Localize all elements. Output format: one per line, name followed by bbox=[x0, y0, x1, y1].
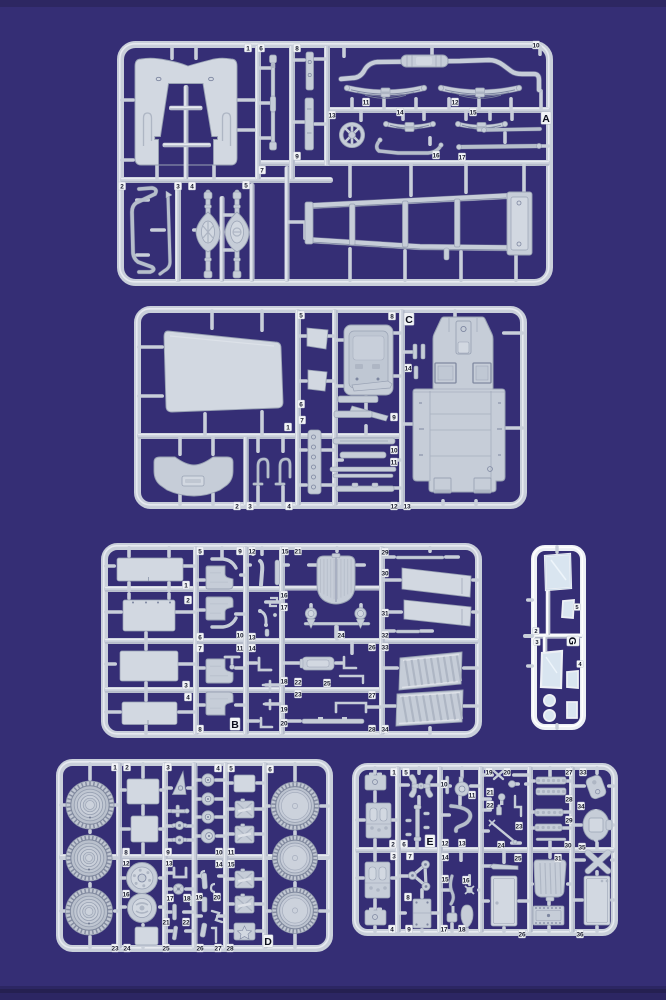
svg-text:4: 4 bbox=[186, 694, 190, 701]
svg-text:7: 7 bbox=[300, 417, 304, 424]
svg-text:26: 26 bbox=[196, 945, 204, 952]
svg-text:13: 13 bbox=[165, 860, 173, 867]
svg-text:4: 4 bbox=[190, 183, 194, 190]
svg-text:23: 23 bbox=[515, 823, 523, 830]
svg-text:34: 34 bbox=[381, 726, 389, 733]
svg-text:11: 11 bbox=[228, 849, 235, 856]
svg-text:5: 5 bbox=[299, 312, 303, 319]
svg-text:20: 20 bbox=[503, 769, 511, 776]
svg-text:D: D bbox=[264, 936, 272, 948]
svg-text:25: 25 bbox=[323, 680, 331, 687]
svg-text:21: 21 bbox=[486, 789, 494, 796]
svg-text:10: 10 bbox=[532, 42, 540, 49]
svg-text:17: 17 bbox=[458, 154, 466, 161]
svg-text:14: 14 bbox=[396, 109, 404, 116]
svg-text:1: 1 bbox=[392, 769, 396, 776]
svg-text:4: 4 bbox=[216, 765, 220, 772]
svg-text:2: 2 bbox=[186, 597, 190, 604]
svg-text:26: 26 bbox=[368, 644, 376, 651]
svg-text:10: 10 bbox=[236, 632, 244, 639]
svg-text:2: 2 bbox=[391, 841, 395, 848]
svg-text:4: 4 bbox=[390, 926, 394, 933]
svg-text:C: C bbox=[405, 314, 413, 326]
svg-text:16: 16 bbox=[122, 891, 130, 898]
svg-text:30: 30 bbox=[381, 570, 389, 577]
svg-text:29: 29 bbox=[381, 549, 389, 556]
svg-text:20: 20 bbox=[213, 894, 221, 901]
svg-text:15: 15 bbox=[469, 109, 477, 116]
svg-text:26: 26 bbox=[518, 931, 526, 938]
svg-text:10: 10 bbox=[440, 781, 448, 788]
svg-text:23: 23 bbox=[111, 945, 119, 952]
svg-text:22: 22 bbox=[486, 802, 494, 809]
svg-text:17: 17 bbox=[440, 926, 448, 933]
svg-text:12: 12 bbox=[441, 840, 449, 847]
svg-text:6: 6 bbox=[198, 634, 202, 641]
svg-text:20: 20 bbox=[280, 720, 288, 727]
svg-text:16: 16 bbox=[462, 877, 470, 884]
svg-text:14: 14 bbox=[441, 854, 449, 861]
svg-text:11: 11 bbox=[363, 99, 370, 106]
svg-text:12: 12 bbox=[390, 503, 398, 510]
svg-text:2: 2 bbox=[534, 629, 537, 635]
svg-text:1: 1 bbox=[246, 45, 250, 52]
svg-text:4: 4 bbox=[287, 503, 291, 510]
svg-text:2: 2 bbox=[125, 764, 129, 771]
svg-text:33: 33 bbox=[381, 644, 389, 651]
svg-text:24: 24 bbox=[497, 842, 505, 849]
svg-text:24: 24 bbox=[337, 632, 345, 639]
svg-text:31: 31 bbox=[381, 610, 389, 617]
svg-text:9: 9 bbox=[238, 548, 242, 555]
svg-text:A: A bbox=[542, 113, 550, 125]
svg-text:21: 21 bbox=[162, 919, 170, 926]
svg-text:8: 8 bbox=[124, 849, 128, 856]
svg-text:18: 18 bbox=[183, 895, 191, 902]
svg-text:13: 13 bbox=[248, 634, 256, 641]
svg-text:22: 22 bbox=[182, 919, 190, 926]
svg-text:8: 8 bbox=[390, 313, 394, 320]
svg-text:1: 1 bbox=[184, 582, 188, 589]
svg-text:22: 22 bbox=[294, 679, 302, 686]
svg-text:16: 16 bbox=[280, 592, 288, 599]
svg-text:18: 18 bbox=[280, 678, 288, 685]
svg-text:5: 5 bbox=[244, 182, 248, 189]
svg-text:8: 8 bbox=[295, 45, 299, 52]
svg-text:2: 2 bbox=[235, 503, 239, 510]
svg-text:15: 15 bbox=[441, 876, 449, 883]
svg-text:5: 5 bbox=[198, 548, 202, 555]
svg-text:10: 10 bbox=[215, 849, 223, 856]
svg-text:18: 18 bbox=[458, 926, 466, 933]
svg-text:5: 5 bbox=[404, 769, 408, 776]
svg-text:3: 3 bbox=[392, 853, 396, 860]
svg-text:9: 9 bbox=[295, 153, 299, 160]
svg-text:17: 17 bbox=[166, 895, 174, 902]
svg-text:2: 2 bbox=[120, 183, 124, 190]
svg-text:7: 7 bbox=[260, 167, 264, 174]
svg-text:11: 11 bbox=[469, 792, 476, 799]
svg-text:3: 3 bbox=[166, 764, 170, 771]
svg-text:31: 31 bbox=[554, 855, 562, 862]
svg-text:7: 7 bbox=[408, 853, 412, 860]
svg-text:27: 27 bbox=[368, 692, 376, 699]
svg-text:19: 19 bbox=[195, 894, 203, 901]
svg-text:12: 12 bbox=[248, 548, 256, 555]
svg-text:6: 6 bbox=[402, 841, 406, 848]
svg-text:24: 24 bbox=[123, 945, 131, 952]
svg-text:9: 9 bbox=[392, 414, 396, 421]
svg-text:G: G bbox=[566, 637, 578, 645]
svg-text:10: 10 bbox=[390, 447, 398, 454]
svg-text:25: 25 bbox=[514, 855, 522, 862]
svg-text:35: 35 bbox=[578, 844, 586, 851]
svg-text:14: 14 bbox=[248, 645, 256, 652]
svg-text:19: 19 bbox=[280, 706, 288, 713]
svg-text:27: 27 bbox=[565, 769, 573, 776]
svg-text:29: 29 bbox=[565, 817, 573, 824]
svg-text:11: 11 bbox=[237, 645, 244, 652]
svg-text:13: 13 bbox=[458, 840, 466, 847]
svg-text:3: 3 bbox=[248, 503, 252, 510]
svg-text:28: 28 bbox=[368, 726, 376, 733]
svg-text:12: 12 bbox=[122, 860, 130, 867]
svg-text:13: 13 bbox=[328, 112, 336, 119]
svg-text:30: 30 bbox=[564, 842, 572, 849]
svg-text:34: 34 bbox=[577, 803, 585, 810]
svg-text:16: 16 bbox=[432, 152, 440, 159]
svg-text:6: 6 bbox=[268, 766, 272, 773]
svg-text:3: 3 bbox=[176, 183, 180, 190]
svg-text:3: 3 bbox=[184, 682, 188, 689]
svg-text:8: 8 bbox=[198, 726, 202, 733]
svg-text:27: 27 bbox=[214, 945, 222, 952]
svg-text:6: 6 bbox=[299, 401, 303, 408]
svg-text:28: 28 bbox=[226, 945, 234, 952]
svg-text:9: 9 bbox=[407, 926, 411, 933]
svg-text:1: 1 bbox=[113, 764, 117, 771]
svg-text:14: 14 bbox=[215, 861, 223, 868]
svg-text:8: 8 bbox=[406, 894, 410, 901]
svg-text:28: 28 bbox=[565, 796, 573, 803]
svg-text:14: 14 bbox=[404, 365, 412, 372]
svg-text:13: 13 bbox=[403, 503, 411, 510]
svg-text:B: B bbox=[231, 719, 239, 731]
svg-text:1: 1 bbox=[286, 424, 290, 431]
svg-text:7: 7 bbox=[198, 645, 202, 652]
svg-text:36: 36 bbox=[576, 931, 584, 938]
svg-text:11: 11 bbox=[391, 459, 398, 466]
svg-text:25: 25 bbox=[162, 945, 170, 952]
svg-text:15: 15 bbox=[281, 548, 289, 555]
svg-text:17: 17 bbox=[280, 604, 288, 611]
svg-text:E: E bbox=[426, 836, 433, 848]
svg-text:12: 12 bbox=[451, 99, 459, 106]
svg-text:21: 21 bbox=[294, 548, 302, 555]
svg-text:6: 6 bbox=[259, 45, 263, 52]
svg-text:5: 5 bbox=[229, 765, 233, 772]
svg-text:33: 33 bbox=[579, 769, 587, 776]
svg-text:19: 19 bbox=[485, 769, 493, 776]
svg-text:23: 23 bbox=[294, 691, 302, 698]
svg-text:9: 9 bbox=[166, 849, 170, 856]
svg-text:15: 15 bbox=[227, 861, 235, 868]
svg-text:32: 32 bbox=[381, 632, 389, 639]
